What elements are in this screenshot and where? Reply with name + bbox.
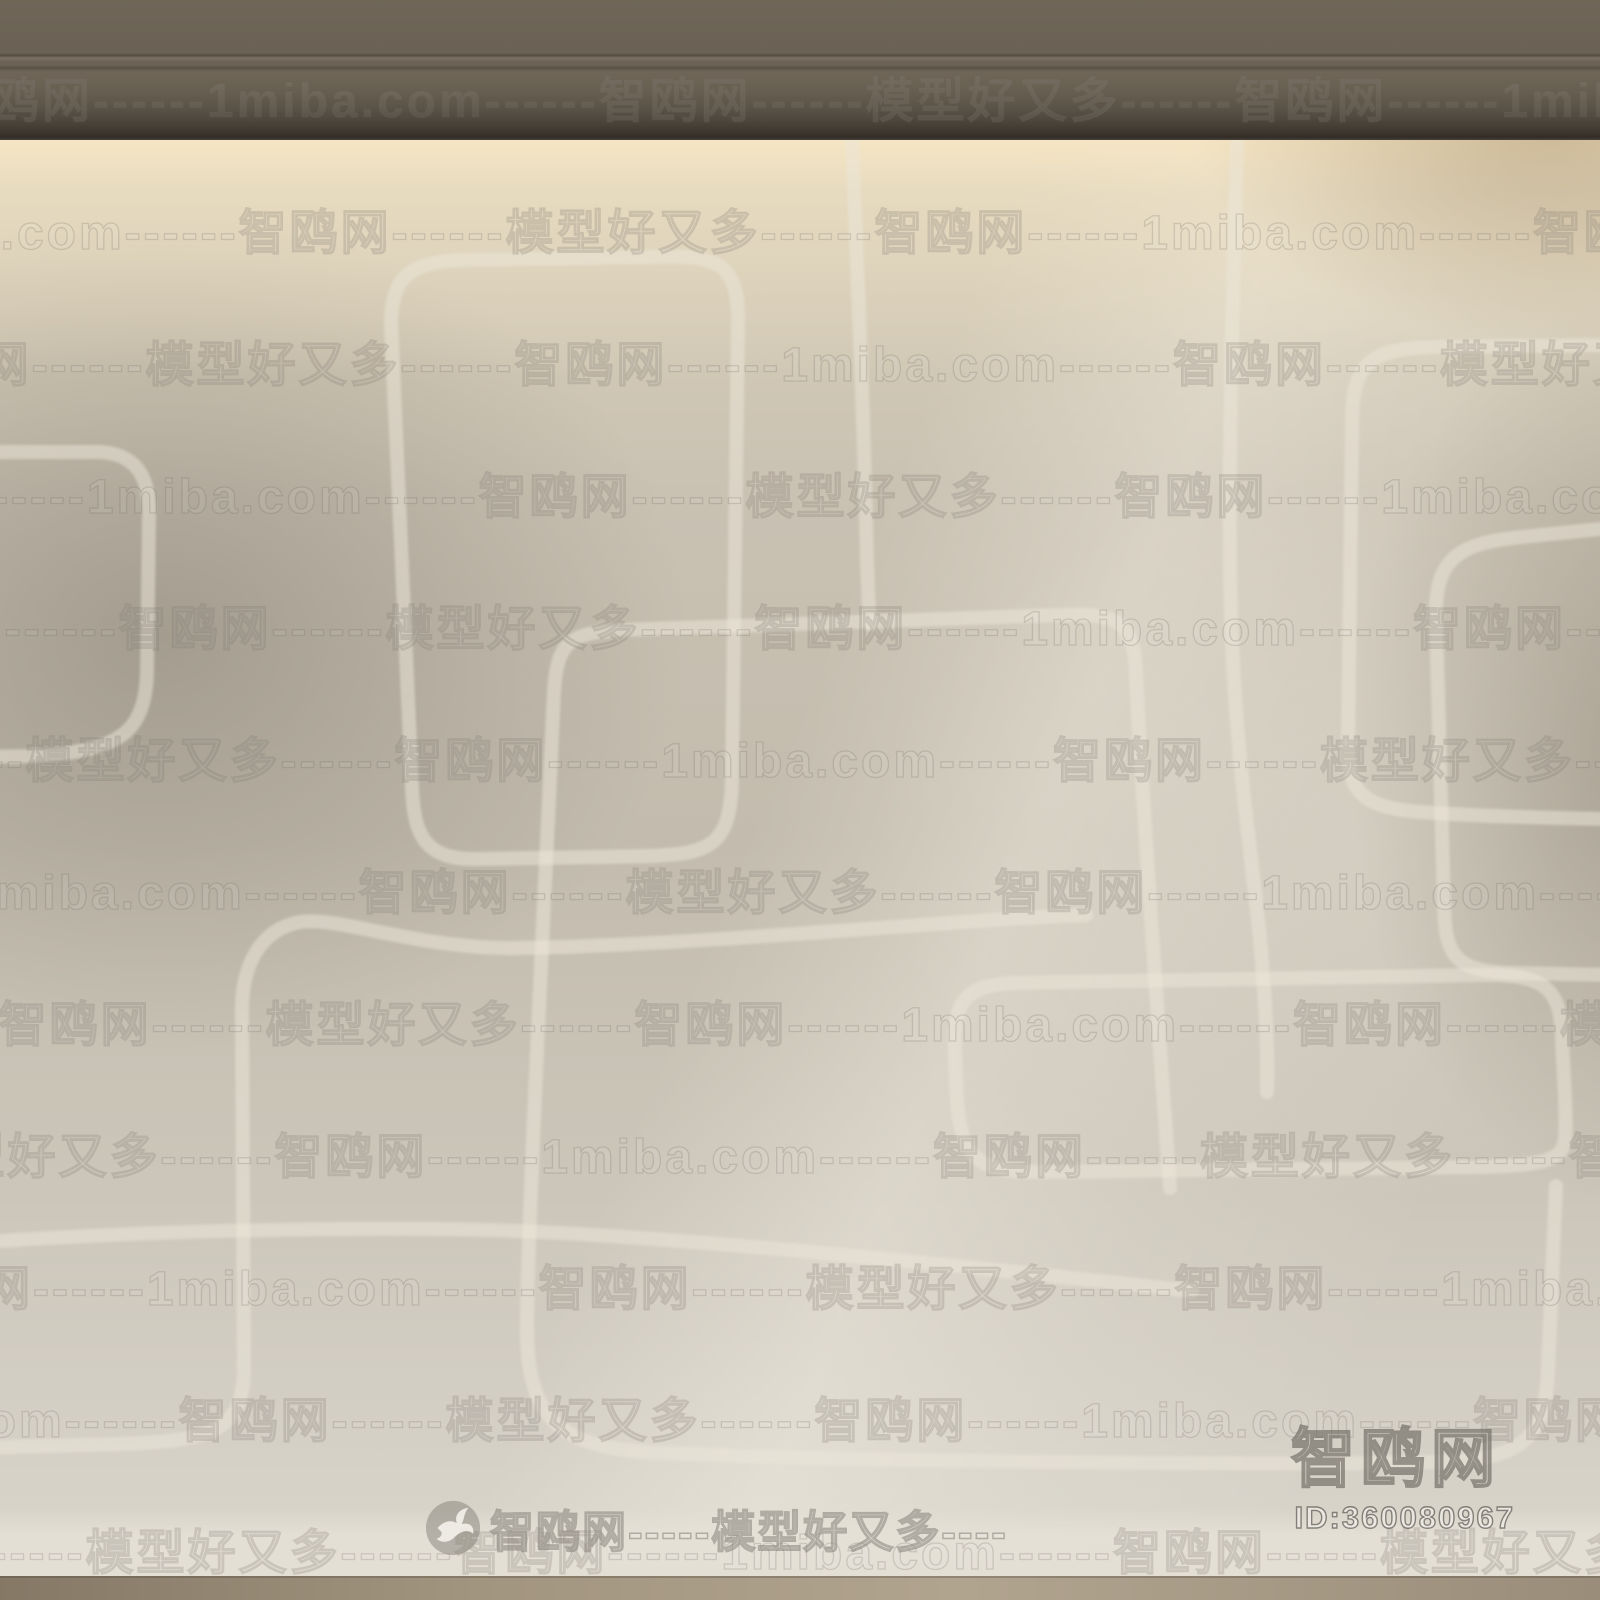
seagull-logo-icon (424, 1499, 482, 1557)
watermark-row: 智鸥网------1miba.com------智鸥网------模型好又多--… (0, 457, 1600, 527)
watermark-row: 智鸥网------1miba.com------智鸥网------模型好又多--… (0, 589, 1600, 659)
watermark-id: ID:360080967 (1291, 1500, 1515, 1536)
watermark-row: 智鸥网------1miba.com------智鸥网------模型好又多--… (0, 1117, 1600, 1187)
footer-watermark: 智鸥网-----模型好又多---- (424, 1498, 1008, 1558)
watermark-row: 智鸥网------1miba.com------智鸥网------模型好又多--… (0, 61, 1600, 131)
render-scene: 智鸥网------1miba.com------智鸥网------模型好又多--… (0, 0, 1600, 1600)
watermark-row: 智鸥网------1miba.com------智鸥网------模型好又多--… (0, 853, 1600, 923)
corner-watermark: 智鸥网 ID:360080967 (1291, 1424, 1515, 1536)
corner-watermark-brand: 智鸥网 (1291, 1424, 1501, 1494)
watermark-row: 智鸥网------1miba.com------智鸥网------模型好又多--… (0, 325, 1600, 395)
watermark-row: 智鸥网------1miba.com------智鸥网------模型好又多--… (0, 985, 1600, 1055)
watermark-row: 智鸥网------1miba.com------智鸥网------模型好又多--… (0, 721, 1600, 791)
watermark-row: 智鸥网------1miba.com------智鸥网------模型好又多--… (0, 193, 1600, 263)
watermark-row: 智鸥网------1miba.com------智鸥网------模型好又多--… (0, 1249, 1600, 1319)
watermark-tile-layer: 智鸥网------1miba.com------智鸥网------模型好又多--… (0, 0, 1600, 1600)
footer-watermark-text: 智鸥网-----模型好又多---- (490, 1496, 1008, 1560)
